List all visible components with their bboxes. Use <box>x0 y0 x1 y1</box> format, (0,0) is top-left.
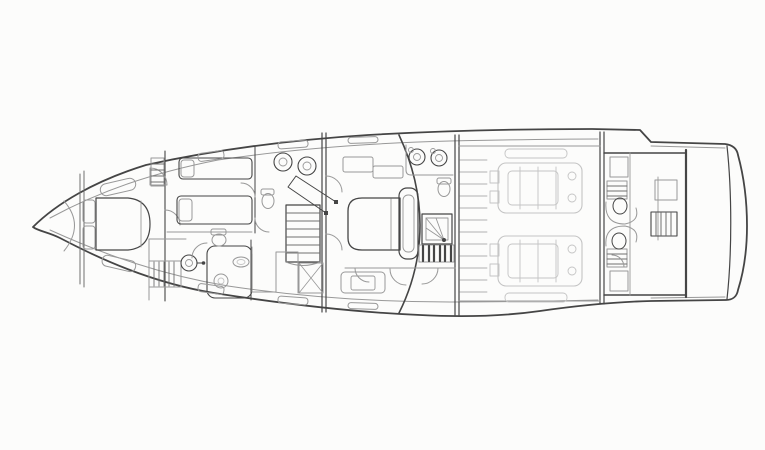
port-bath-post-2 <box>324 211 328 215</box>
shower-drain <box>442 238 446 242</box>
port-bath-post-1 <box>334 200 338 204</box>
fwd-bath-sink-tap-dot <box>202 261 206 265</box>
paper-background <box>0 0 765 450</box>
floor-plan-svg <box>0 0 765 450</box>
yacht-floor-plan <box>0 0 765 450</box>
